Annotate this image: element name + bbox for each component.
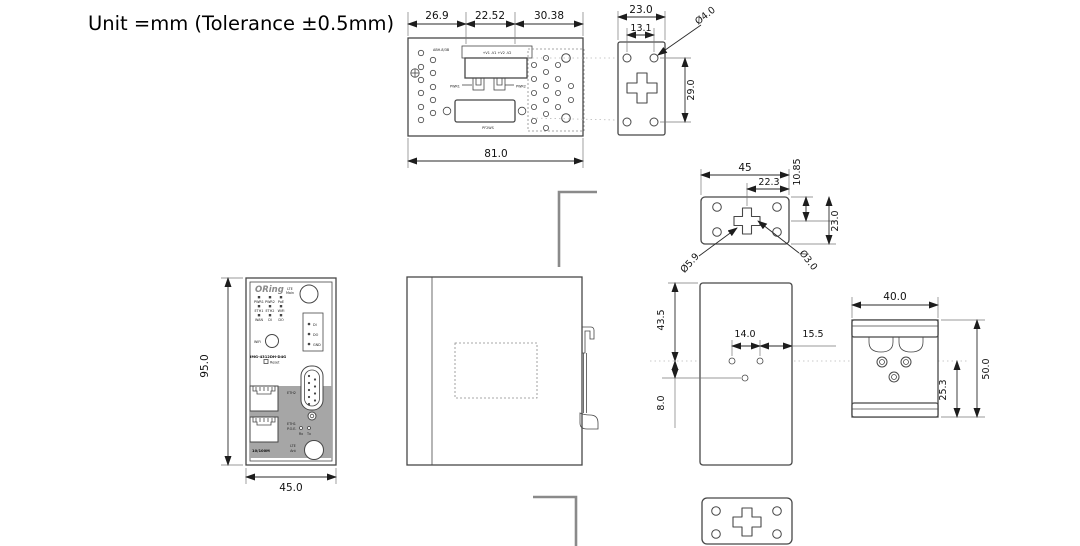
wifi-button: [266, 335, 279, 348]
dim-45-0: 45.0: [279, 482, 302, 494]
front-view: ORing LTE Main PWR1 PWR2 PoE ETH1 ETH2 W…: [199, 278, 336, 494]
dim-23-0-plate: 23.0: [830, 210, 841, 231]
dim-hole-3-0: Ø3.0: [797, 248, 820, 273]
top-view: ABH-8/3B +V1 -V1 +V2 -V2 PWR1 PWR2 PF2WS: [408, 10, 616, 168]
dim-81-0: 81.0: [484, 148, 507, 160]
dim-hole-5-9: Ø5.9: [678, 251, 701, 275]
top-power-label: ABH-8/3B: [433, 48, 450, 52]
speed-label: 10/100M: [252, 449, 270, 453]
pwr1-label: PWR1: [450, 85, 460, 89]
wall-bracket-top-view: 23.0 13.1 Ø4.0 29.0: [618, 4, 718, 135]
dim-25-3: 25.3: [938, 379, 949, 400]
rj45-port-eth2: [250, 386, 278, 411]
led-label: PWR1: [254, 300, 264, 304]
dim-22-52: 22.52: [475, 10, 505, 22]
ant-bottom-label-1: LTE: [290, 444, 296, 448]
mounting-plate-view: 45 22.3 10.85 23.0 Ø5.9 Ø3.0: [678, 158, 841, 275]
serial-label: PF2WS: [482, 126, 494, 130]
dim-45: 45: [738, 162, 751, 174]
dim-43-5: 43.5: [656, 309, 667, 330]
pin-label: DI: [313, 323, 317, 327]
rj45-port-eth1: [250, 417, 278, 442]
pin-label: GND: [313, 343, 321, 347]
model-number: IMG-4312DH-D4G: [250, 355, 286, 359]
dim-40-0: 40.0: [883, 291, 906, 303]
pwr2-label: PWR2: [516, 85, 526, 89]
terminal-labels: +V1 -V1 +V2 -V2: [483, 51, 512, 55]
tx-label: Tx: [306, 432, 311, 436]
ant-bottom-label-2: Ant: [290, 449, 296, 453]
serial-cutout: [443, 100, 526, 122]
bracket-profile-upper: [559, 192, 597, 267]
dim-50-0: 50.0: [981, 358, 992, 379]
dim-hole-4-0: Ø4.0: [693, 5, 718, 28]
mounting-plate-bottom-view: [702, 498, 792, 544]
port2-label-line2: P.O.E.: [287, 427, 296, 431]
led-label: WiFi: [278, 309, 285, 313]
dim-15-5: 15.5: [802, 329, 823, 340]
port1-label: ETH2: [287, 391, 296, 395]
reset-label: Reset: [270, 361, 280, 365]
led-label: DO: [278, 318, 284, 322]
dim-23-0: 23.0: [629, 4, 652, 16]
led-label: DI: [268, 318, 272, 322]
dim-95-0: 95.0: [199, 354, 211, 377]
dim-29-0: 29.0: [686, 79, 697, 100]
led-label: ETH2: [266, 309, 275, 313]
din-clip-profile: [580, 327, 598, 429]
dim-13-1: 13.1: [630, 23, 651, 34]
bracket-profile-lower: [533, 497, 576, 546]
drawing-canvas: Unit =mm (Tolerance ±0.5mm): [0, 0, 1080, 546]
dim-26-9: 26.9: [425, 10, 448, 22]
side-view: [407, 277, 598, 465]
ground-screw-icon: [411, 69, 419, 77]
lte-main-label-2: Main: [286, 291, 294, 295]
dim-30-38: 30.38: [534, 10, 564, 22]
dim-8-0: 8.0: [656, 395, 667, 410]
rx-label: Rx: [299, 432, 303, 436]
pin-label: DO: [313, 333, 319, 337]
dim-10-85: 10.85: [792, 158, 803, 185]
led-label: ETH1: [255, 309, 264, 313]
page-title: Unit =mm (Tolerance ±0.5mm): [88, 12, 394, 35]
brand-logo: ORing: [255, 285, 284, 295]
dimension-drawing-page: Unit =mm (Tolerance ±0.5mm): [0, 0, 1080, 546]
antenna-connector-top: [300, 285, 318, 303]
antenna-connector-bottom: [305, 441, 324, 460]
led-label: PWR2: [265, 300, 275, 304]
led-matrix: PWR1 PWR2 PoE ETH1 ETH2 WiFi WAN DI DO: [254, 296, 284, 322]
din-rail-clip-view: 40.0 50.0 25.3: [852, 291, 992, 417]
led-label: WAN: [255, 318, 263, 322]
wifi-button-label: WiFi: [254, 340, 261, 344]
dim-22-3: 22.3: [758, 177, 779, 188]
dim-14-0: 14.0: [734, 329, 755, 340]
led-label: PoE: [278, 300, 284, 304]
port2-label-line1: ETH1: [287, 422, 296, 426]
